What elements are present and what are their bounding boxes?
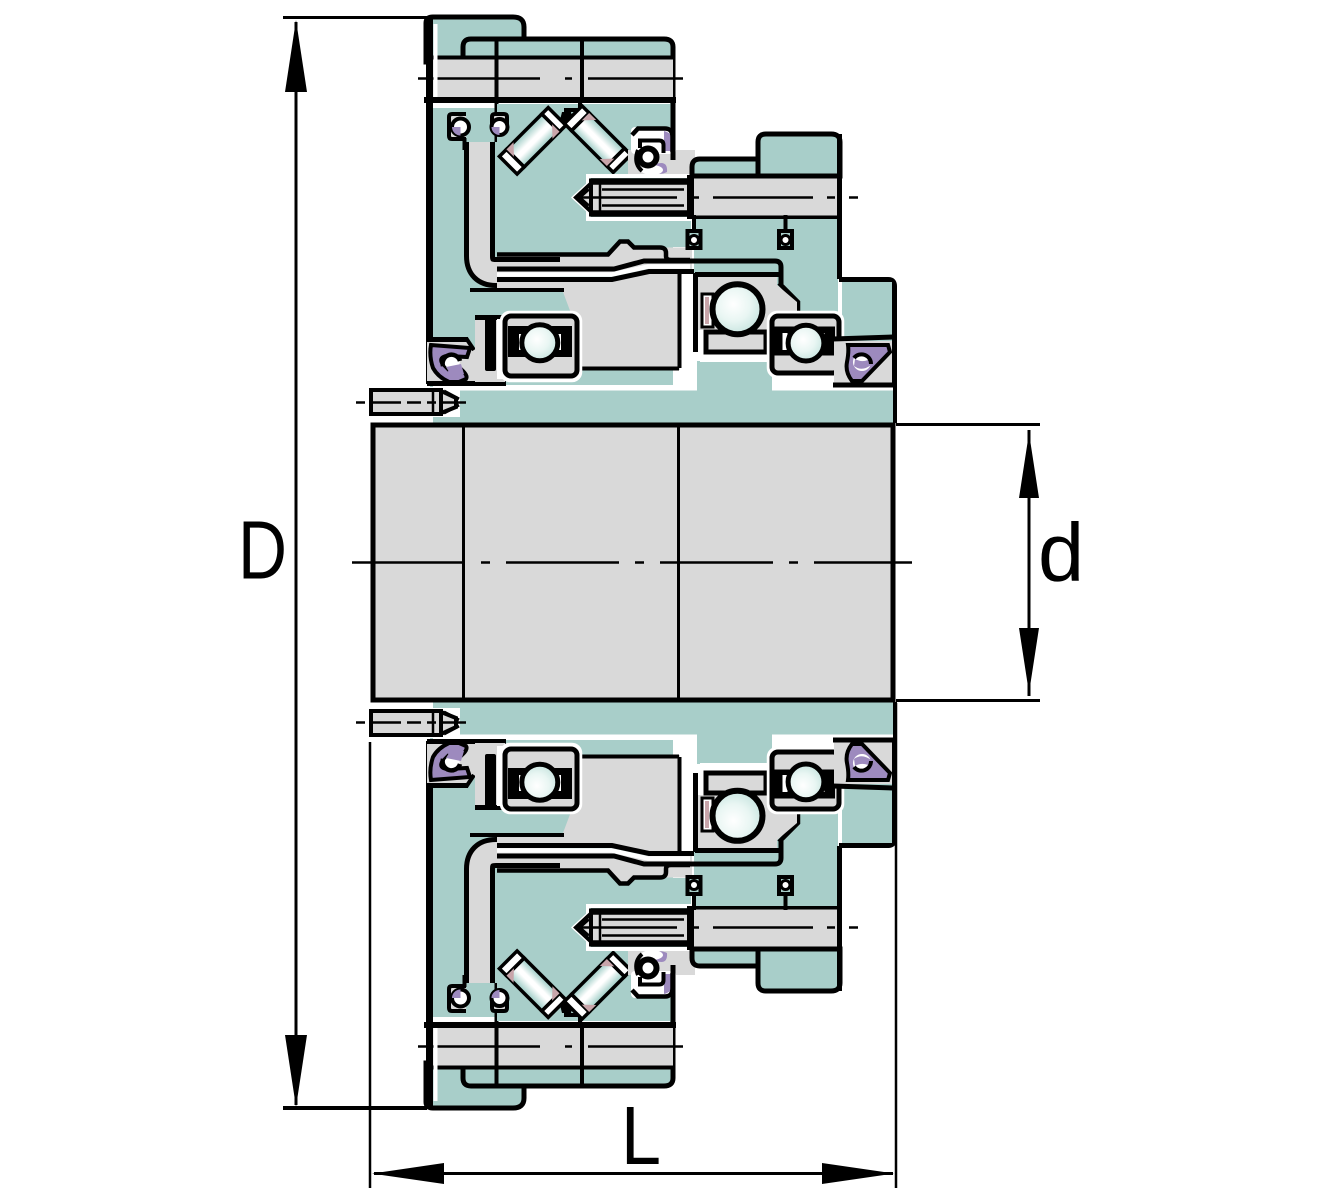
svg-text:L: L <box>621 1089 661 1182</box>
svg-text:D: D <box>238 504 287 597</box>
svg-text:d: d <box>1038 506 1084 599</box>
